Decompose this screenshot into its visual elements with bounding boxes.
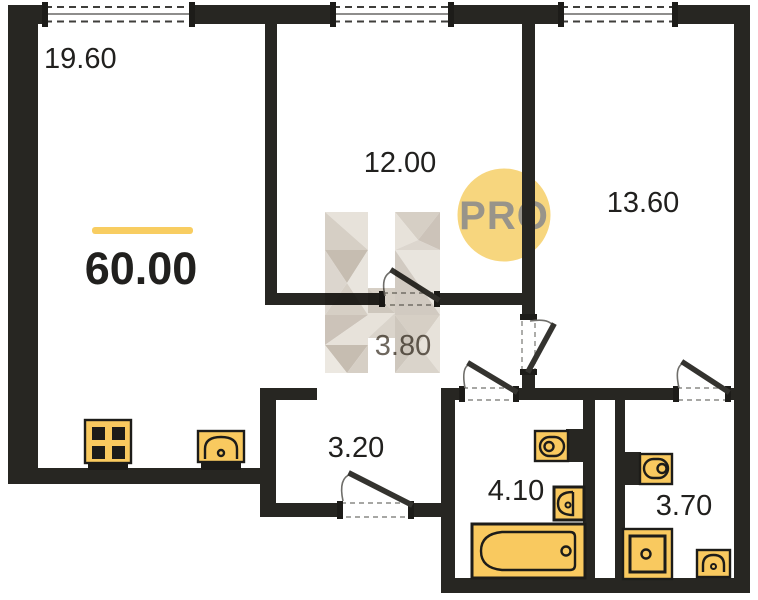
- toilet-room-area-label: 3.70: [656, 490, 712, 522]
- corridor-area-label: 3.20: [328, 432, 384, 464]
- floor-plan: PRO: [0, 0, 758, 600]
- pro-watermark: PRO: [458, 169, 551, 262]
- washbasin-icon: [554, 487, 584, 520]
- floor-plan-canvas: PRO: [0, 0, 758, 600]
- washbasin-icon: [697, 550, 730, 578]
- bathtub-icon: [472, 524, 585, 578]
- living-room-area-label: 19.60: [44, 43, 117, 75]
- toilet-icon: [640, 454, 672, 484]
- washing-machine-icon: [623, 529, 672, 579]
- room-13-area-label: 13.60: [607, 187, 680, 219]
- stove-icon: [85, 420, 131, 470]
- room-12-area-label: 12.00: [364, 147, 437, 179]
- total-area-label: 60.00: [85, 243, 198, 294]
- total-area-accent-line: [92, 227, 193, 234]
- kitchen-sink-icon: [198, 431, 244, 470]
- duct-box: [625, 452, 641, 485]
- toilet-icon: [535, 431, 568, 461]
- bathroom-area-label: 4.10: [488, 475, 544, 507]
- pro-watermark-label: PRO: [459, 194, 549, 238]
